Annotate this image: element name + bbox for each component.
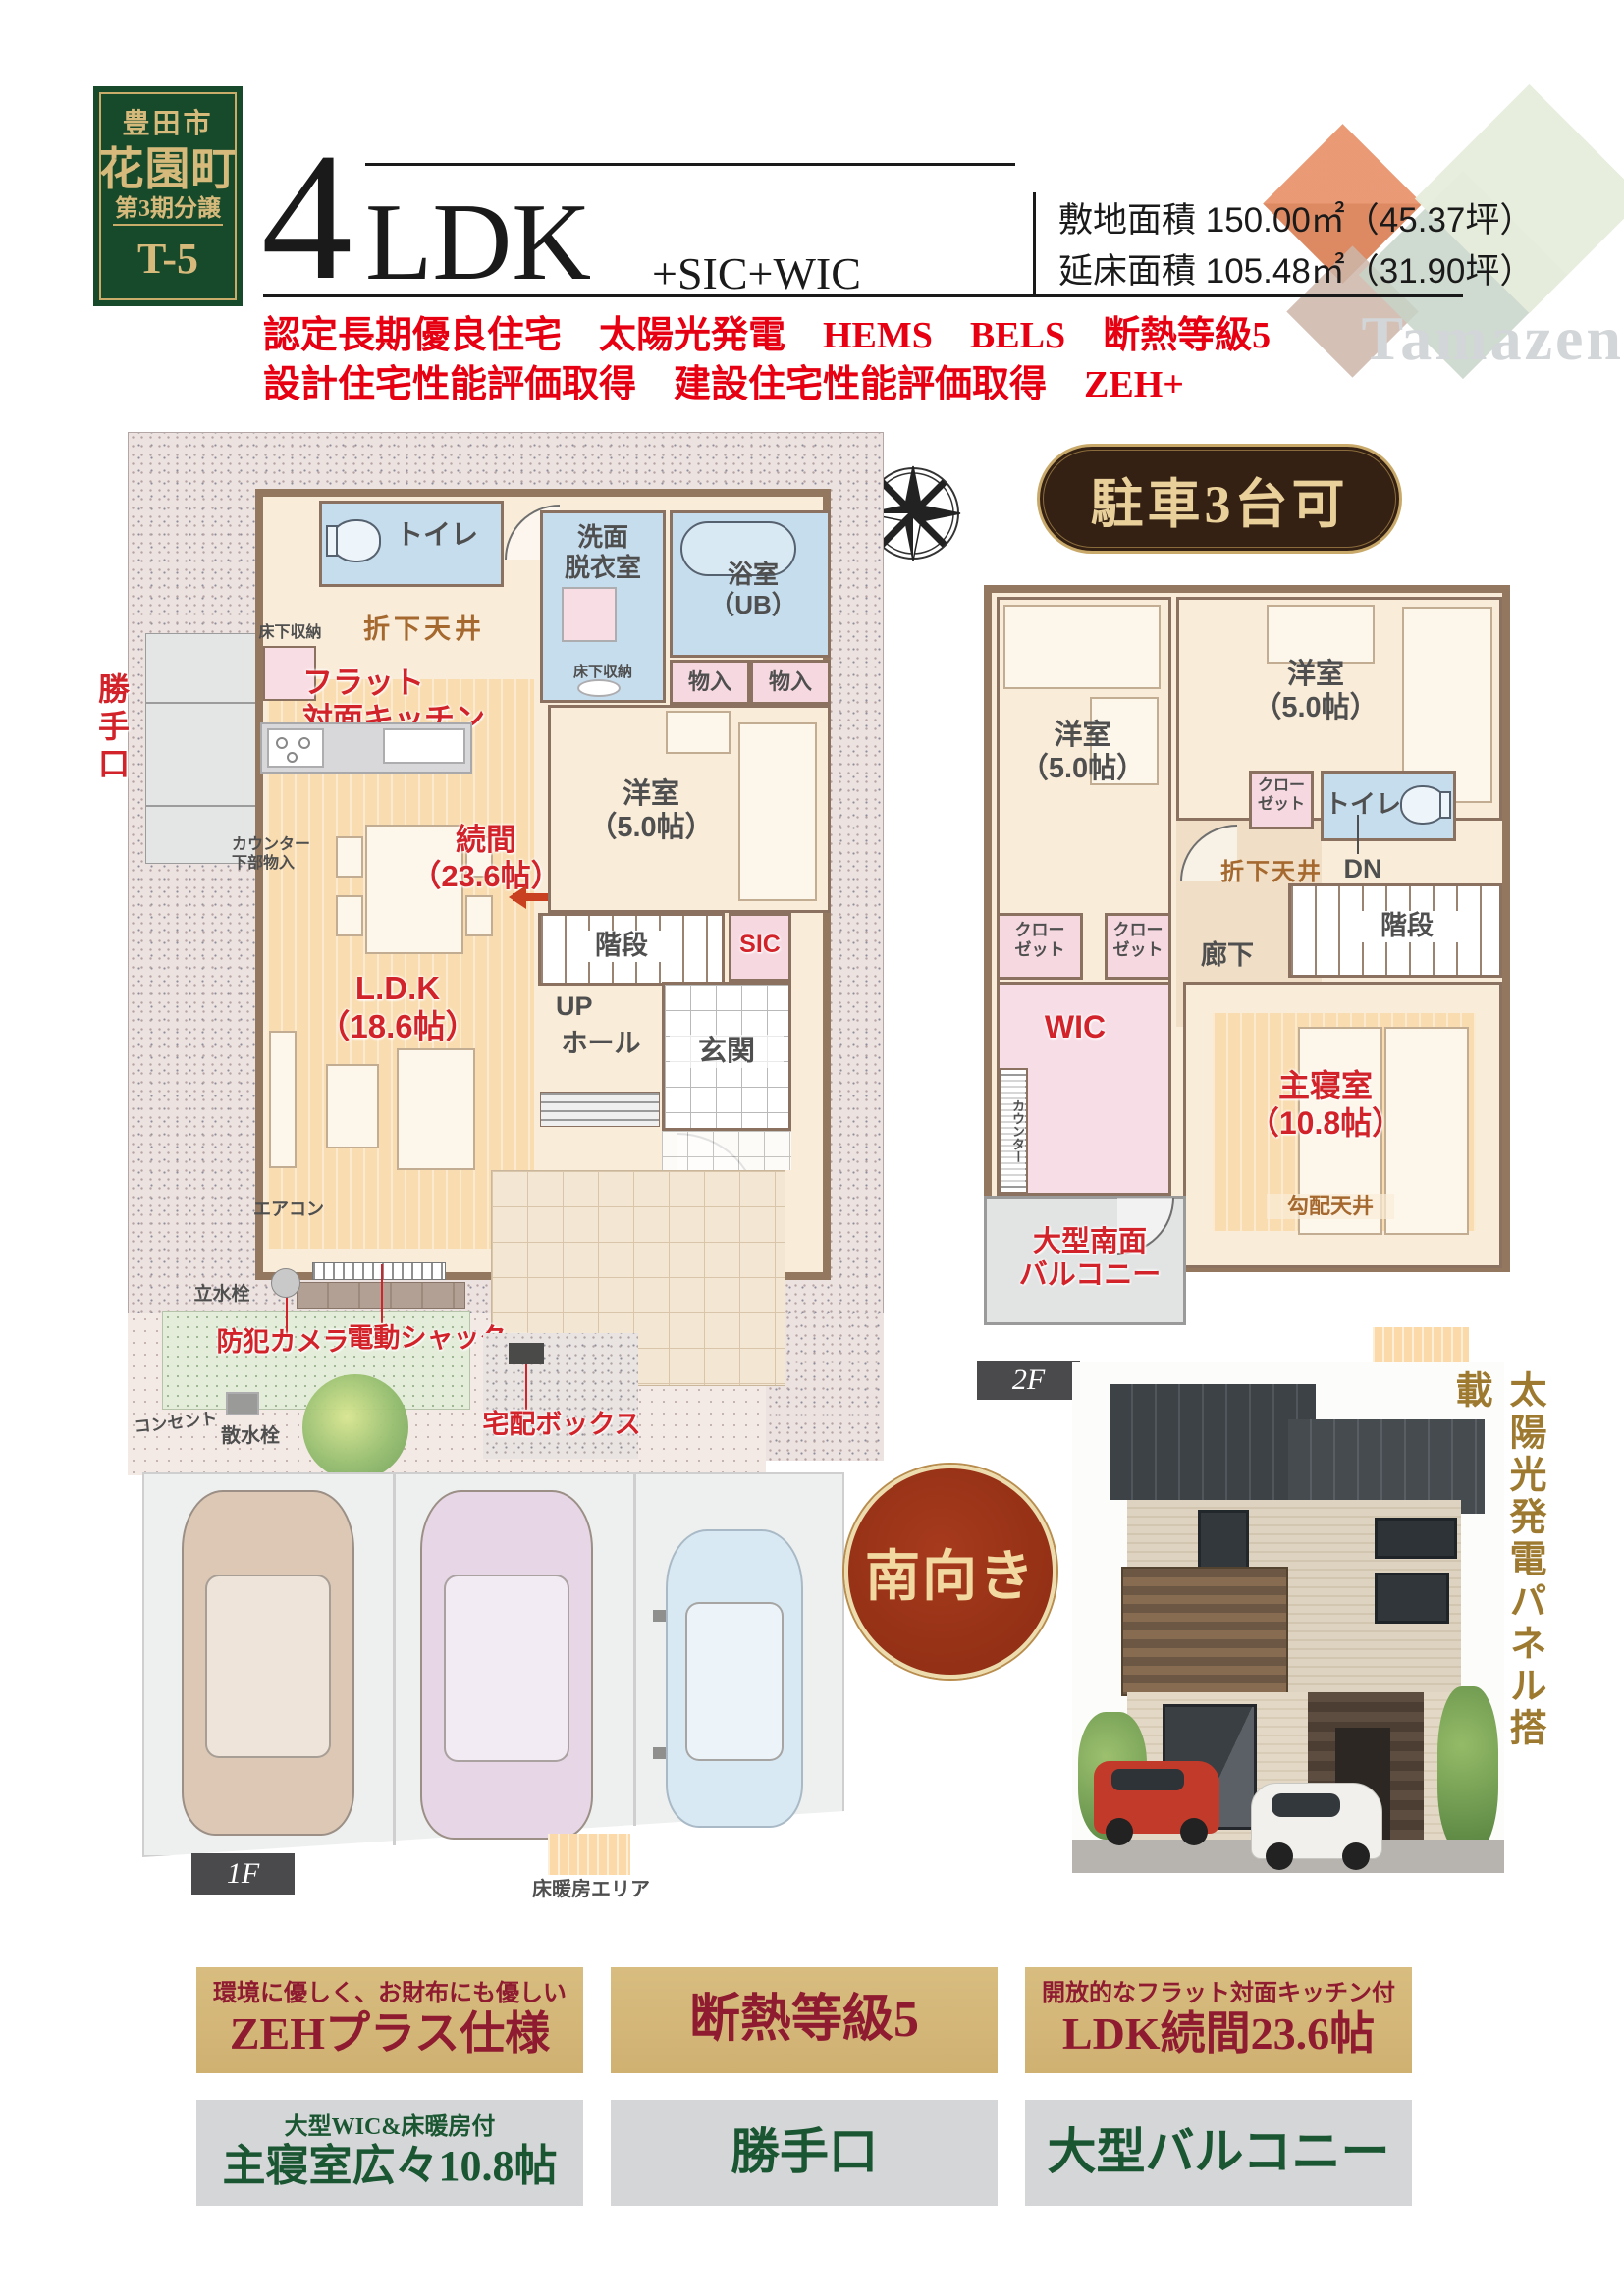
lowered-ceiling-1f-label: 折下天井	[336, 614, 513, 646]
up-label: UP	[544, 991, 623, 1023]
hall-label: ホール	[542, 1029, 660, 1060]
floor-label-2f: 2F	[977, 1361, 1080, 1400]
floor-label-1f: 1F	[191, 1853, 295, 1895]
aircon-label: エアコン	[253, 1200, 361, 1220]
dn-label: DN	[1333, 854, 1392, 885]
spec-site-label: 敷地面積	[1058, 201, 1196, 240]
toilet-tank-icon	[326, 525, 338, 557]
feature-master-main: 主寝室広々10.8帖	[223, 2142, 558, 2192]
car-cabin	[685, 1602, 785, 1761]
parking-badge-label: 駐車3台可	[1091, 460, 1349, 538]
car-blue	[666, 1529, 803, 1828]
delivery-pointer	[525, 1364, 527, 1410]
shutter-slats	[312, 1262, 446, 1280]
feature-box-balcony: 大型バルコニー	[1025, 2100, 1412, 2206]
storage-b-label: 物入	[750, 669, 831, 695]
house-exterior-render	[1072, 1362, 1504, 1873]
feature-insulation-main: 断熱等級5	[689, 1991, 919, 2050]
corridor-label: 廊下	[1183, 940, 1272, 972]
feature-master-top: 大型WIC&床暖房付	[285, 2113, 496, 2142]
sloped-ceiling-label: 勾配天井	[1267, 1194, 1394, 1219]
washing-machine	[562, 587, 617, 642]
render-window	[1375, 1518, 1457, 1559]
toilet-tank-icon	[1439, 791, 1451, 819]
burner-icon	[276, 737, 288, 749]
lot-badge-phase: 第3期分譲	[93, 188, 243, 223]
header-rule	[263, 294, 1463, 297]
counter-storage-label: カウンター 下部物入	[232, 836, 340, 874]
sprinkler-label: 散水栓	[196, 1425, 304, 1449]
dining-chair	[336, 895, 363, 936]
facing-south-badge: 南向き	[844, 1465, 1056, 1679]
car-wheel-icon	[1106, 1818, 1133, 1845]
plan-2f: 洋室 （5.0帖） 洋室 （5.0帖） クロー ゼット トイレ 折下天井 DN …	[972, 569, 1624, 1433]
stove-icon	[267, 728, 324, 768]
stairs-1f-label: 階段	[568, 931, 676, 962]
balcony-label: 大型南面 バルコニー	[1001, 1225, 1178, 1292]
car-cabin	[205, 1575, 330, 1759]
dn-pointer	[1357, 815, 1359, 854]
spec-floor-label: 延床面積	[1058, 252, 1196, 291]
western-2f-a-label: 洋室 （5.0帖）	[1001, 719, 1164, 785]
tv-board	[269, 1031, 297, 1168]
spec-site-value: 150.00㎡（45.37坪）	[1206, 201, 1535, 240]
security-camera-icon	[271, 1268, 300, 1298]
desk-2f-b	[1267, 605, 1375, 664]
car-lavender	[420, 1490, 593, 1840]
render-roof-left	[1110, 1384, 1316, 1500]
car-windshield	[1111, 1769, 1184, 1790]
car-cabin	[444, 1575, 568, 1761]
lot-badge-divider	[113, 224, 223, 226]
toilet-2f-label: トイレ	[1324, 789, 1402, 820]
bath-label: 浴室 （UB）	[689, 560, 817, 619]
flyer-page: Tamazen 豊田市 花園町 第3期分譲 T-5 4 LDK +SIC+WIC…	[0, 0, 1624, 2296]
western-1f-label: 洋室 （5.0帖）	[568, 777, 734, 844]
feature-box-zeh: 環境に優しく、お財布にも優しい ZEHプラス仕様	[196, 1967, 583, 2073]
arrow-head-left	[497, 885, 526, 909]
faucet-label: 立水栓	[173, 1284, 271, 1306]
sofa	[397, 1048, 475, 1170]
title-number: 4	[261, 126, 352, 308]
toilet-1f-label: トイレ	[378, 518, 496, 551]
feature-box-insulation: 断熱等級5	[611, 1967, 998, 2073]
car-wheel-icon	[1180, 1818, 1208, 1845]
feature-box-ldk: 開放的なフラット対面キッチン付 LDK続間23.6帖	[1025, 1967, 1412, 2073]
underfloor-storage-wash-label: 床下収納	[542, 664, 664, 681]
feature-line-1: 認定長期優良住宅 太陽光発電 HEMS BELS 断熱等級5	[263, 304, 1500, 358]
feature-zeh-main: ZEHプラス仕様	[230, 2008, 550, 2060]
car-windshield	[1272, 1793, 1340, 1817]
feature-box-backdoor: 勝手口	[611, 2100, 998, 2206]
spec-row-site: 敷地面積 150.00㎡（45.37坪）	[1058, 192, 1608, 242]
spec-floor-value: 105.48㎡（31.90坪）	[1206, 252, 1535, 291]
title-suffix: +SIC+WIC	[652, 247, 861, 299]
title-overline	[365, 163, 1015, 166]
parking-badge: 駐車3台可	[1037, 444, 1402, 554]
washroom-label: 洗面 脱衣室	[542, 522, 664, 582]
porch	[662, 1131, 791, 1170]
backdoor-step-line	[145, 805, 257, 807]
coffee-table	[326, 1064, 379, 1148]
floor-label-2f-text: 2F	[1012, 1363, 1045, 1397]
facing-south-label: 南向き	[865, 1532, 1036, 1612]
dining-chair	[465, 895, 493, 936]
storage-a-label: 物入	[670, 669, 750, 695]
closet-c-label: クロー ゼット	[1249, 777, 1314, 815]
stall-divider	[393, 1472, 396, 1845]
master-label: 主寝室 （10.8帖）	[1222, 1068, 1429, 1143]
washbasin	[577, 679, 621, 697]
bed-2f-a	[1003, 605, 1161, 689]
stairs-2f-label: 階段	[1353, 911, 1461, 942]
entrance-step	[540, 1092, 660, 1127]
heating-legend-label-1f: 床暖房エリア	[513, 1879, 670, 1902]
underfloor-storage-kitchen-label: 床下収納	[234, 624, 347, 643]
wic-label: WIC	[1026, 1009, 1124, 1046]
spec-row-floor: 延床面積 105.48㎡（31.90坪）	[1058, 243, 1608, 294]
dining-chair	[336, 836, 363, 878]
feature-ldk-top: 開放的なフラット対面キッチン付	[1042, 1980, 1395, 2008]
plan-1f: 勝手口 トイレ 洗面 脱衣室 床下収納 浴室 （UB） 物入 物入 床下収納 折…	[88, 432, 884, 1904]
feature-box-master: 大型WIC&床暖房付 主寝室広々10.8帖	[196, 2100, 583, 2206]
spec-divider	[1033, 192, 1036, 294]
kitchen-island-sink	[383, 728, 465, 764]
shutter-pointer	[381, 1264, 383, 1323]
closet-a-label: クロー ゼット	[997, 921, 1083, 960]
ldk-label: L.D.K （18.6帖）	[299, 970, 496, 1046]
stall-divider	[633, 1472, 636, 1826]
feature-balcony-main: 大型バルコニー	[1048, 2124, 1390, 2181]
counter-label: カウンター	[1001, 1076, 1025, 1186]
car-wheel-icon	[1266, 1842, 1293, 1870]
feature-line-2: 設計住宅性能評価取得 建設住宅性能評価取得 ZEH+	[263, 353, 1500, 407]
bed-1f	[738, 722, 817, 901]
sprinkler-box	[226, 1392, 259, 1415]
render-car-white	[1251, 1783, 1382, 1859]
floor-label-1f-text: 1F	[227, 1857, 259, 1891]
delivery-box-icon	[509, 1343, 544, 1364]
feature-ldk-main: LDK続間23.6帖	[1062, 2008, 1375, 2060]
desk-1f	[666, 711, 731, 754]
lot-badge: 豊田市 花園町 第3期分譲 T-5	[93, 86, 243, 306]
render-balcony-wood	[1121, 1567, 1288, 1696]
render-window	[1375, 1573, 1449, 1624]
solar-caption: 太陽光発電パネル搭載	[1506, 1370, 1551, 1783]
burner-icon	[287, 752, 298, 763]
backdoor-label: 勝手口	[88, 640, 130, 817]
feature-backdoor-main: 勝手口	[731, 2124, 878, 2181]
backdoor-step-line	[145, 702, 257, 704]
western-2f-b-label: 洋室 （5.0帖）	[1218, 658, 1414, 724]
delivery-box-label: 宅配ボックス	[454, 1410, 670, 1441]
render-car-red	[1094, 1761, 1219, 1834]
entrance-label: 玄関	[670, 1035, 784, 1068]
title-ldk: LDK	[365, 183, 591, 303]
car-wheel-icon	[1342, 1842, 1370, 1870]
lot-badge-number: T-5	[93, 234, 243, 284]
heating-legend-swatch-1f	[548, 1834, 630, 1875]
burner-icon	[298, 737, 310, 749]
sic-label: SIC	[729, 931, 791, 960]
car-tan	[182, 1490, 354, 1836]
feature-zeh-top: 環境に優しく、お財布にも優しい	[213, 1980, 567, 2008]
bush-icon	[1437, 1686, 1498, 1853]
backdoor-landing	[145, 633, 257, 864]
tree-icon	[302, 1374, 408, 1480]
closet-b-label: クロー ゼット	[1105, 921, 1171, 960]
